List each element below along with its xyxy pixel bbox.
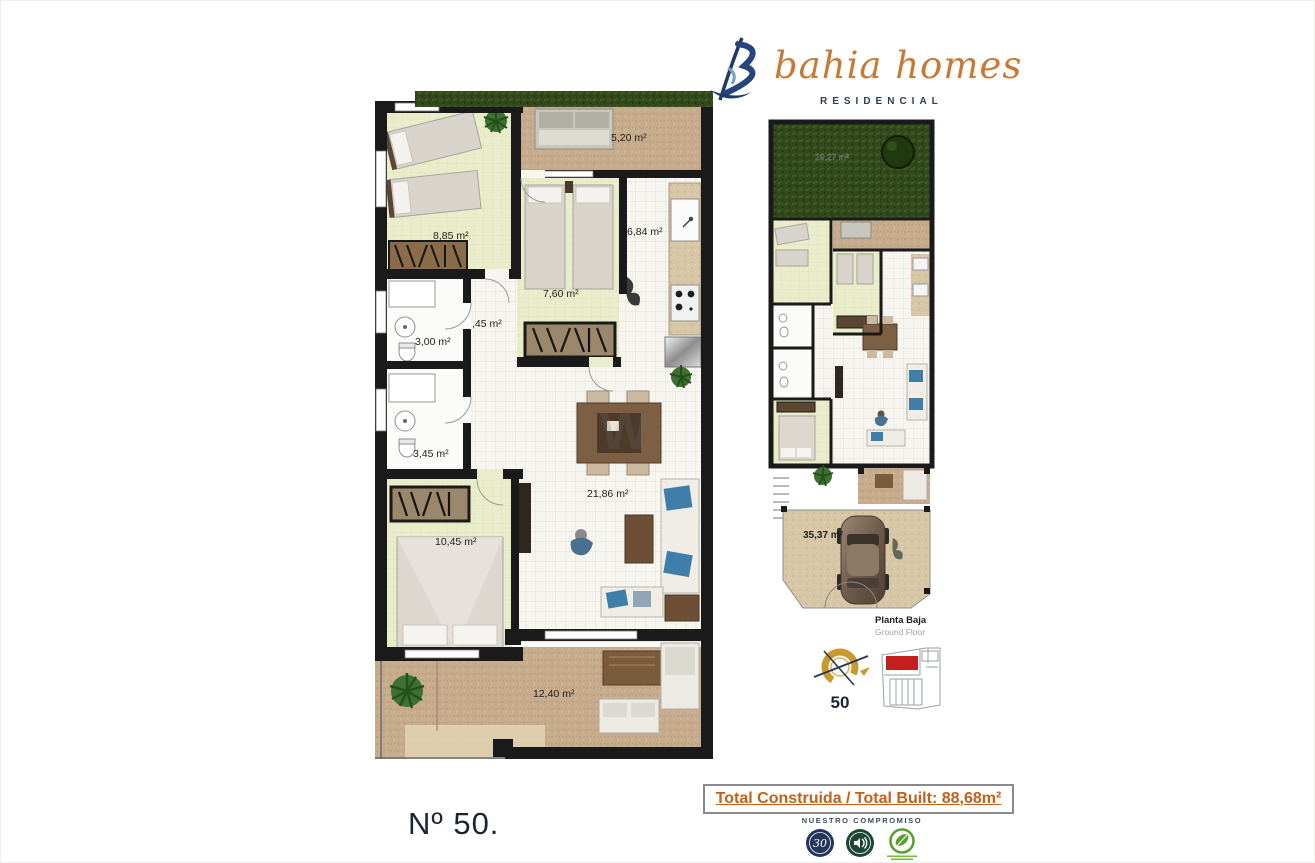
main-floorplan: 5,20 m² 8,85 m² 7,60 m² 6,84 m² 3,00 m² … (375, 91, 713, 763)
compass-number: 50 (812, 693, 868, 713)
commitment-section: NUESTRO COMPROMISO 30 (752, 816, 972, 862)
label-master-bedroom: 10,45 m² (435, 536, 477, 548)
svg-text:30: 30 (813, 837, 827, 850)
label-bedroom1: 8,85 m² (433, 230, 469, 242)
brand-name: bahia homes (774, 44, 1022, 87)
label-bedroom2: 7,60 m² (543, 288, 579, 300)
bedroom-2 (517, 178, 619, 358)
acoustic-quality-badge-icon (845, 828, 875, 858)
label-terrace-top: 5,20 m² (611, 132, 647, 144)
nightstand (565, 181, 573, 193)
shower (389, 374, 435, 402)
wardrobe (389, 241, 467, 271)
site-location-thumbnail (876, 643, 946, 713)
highlighted-unit (886, 656, 918, 670)
shower (389, 281, 435, 307)
30-anniversary-badge-icon: 30 (805, 828, 835, 858)
stove (671, 285, 699, 321)
brand-logo: bahia homes RESIDENCIAL (698, 34, 998, 114)
wardrobe (525, 323, 615, 357)
fridge (665, 337, 701, 367)
label-bathroom2: 3,45 m² (413, 448, 449, 460)
floorplan-page: bahia homes RESIDENCIAL (0, 0, 1315, 863)
total-built-text: Total Construida / Total Built: 88,68m² (716, 790, 1002, 808)
floor-caption-es: Planta Baja (875, 615, 927, 626)
tv-unit (517, 483, 531, 553)
garden: 29,27 m² (773, 124, 930, 220)
label-driveway: 35,37 m² (803, 530, 844, 541)
commitment-badges: 30 (752, 828, 972, 862)
label-living-room: 21,86 m² (587, 488, 629, 500)
orientation-block: 50 (806, 643, 956, 715)
floor-caption-en: Ground Floor (875, 627, 925, 637)
label-kitchen: 6,84 m² (627, 226, 663, 238)
dining-table (577, 391, 661, 475)
unit-number: Nº 50. (408, 806, 499, 842)
car (837, 516, 889, 604)
label-bathroom1: 3,00 m² (415, 336, 451, 348)
badge-caption-line (891, 859, 913, 861)
terrace-top (517, 105, 701, 170)
compass-icon (808, 643, 872, 693)
badge-caption-line (887, 856, 917, 858)
brand-tagline: RESIDENCIAL (820, 96, 943, 107)
side-table (665, 595, 699, 621)
tree (882, 136, 914, 168)
bathroom-1 (387, 279, 463, 363)
driveway: 35,37 m² (781, 506, 930, 608)
kitchen-sink (671, 199, 699, 241)
total-built-box: Total Construida / Total Built: 88,68m² (703, 784, 1014, 814)
hedge (415, 91, 713, 107)
label-garden: 29,27 m² (815, 152, 849, 162)
label-hall: ,45 m² (472, 318, 502, 330)
label-terrace-bottom: 12,40 m² (533, 688, 575, 700)
coffee-table (625, 515, 653, 563)
ground-floor-plan: 29,27 m² (763, 118, 940, 640)
master-bedroom (387, 477, 511, 654)
commitment-title: NUESTRO COMPROMISO (752, 816, 972, 825)
sustainability-leaf-badge-icon (885, 828, 919, 862)
double-bed (397, 537, 503, 654)
wardrobe (391, 487, 469, 521)
